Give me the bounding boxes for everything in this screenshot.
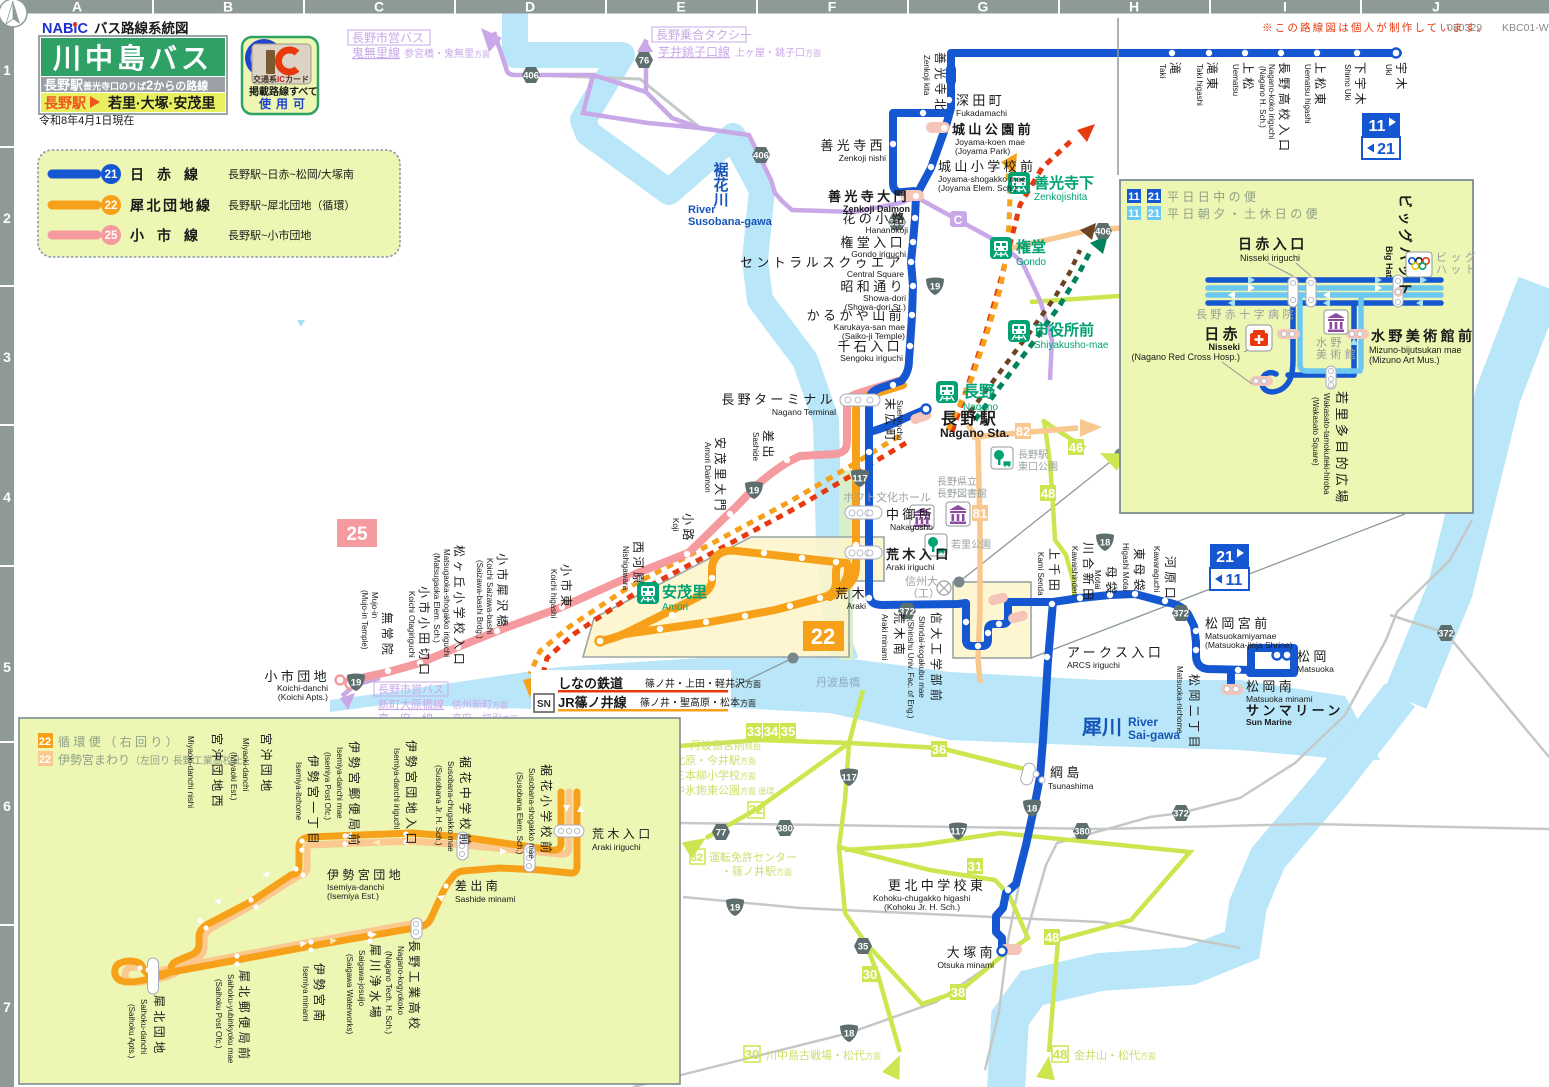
svg-text:美術館: 美術館 xyxy=(1316,347,1359,361)
svg-text:Kawaraguchi: Kawaraguchi xyxy=(1152,546,1161,592)
svg-text:伊勢宮一丁目: 伊勢宮一丁目 xyxy=(306,755,321,847)
svg-text:Gondo: Gondo xyxy=(1016,257,1046,268)
svg-text:32: 32 xyxy=(691,852,703,864)
svg-text:城山公園前: 城山公園前 xyxy=(952,122,1034,137)
svg-text:Isemiya-danchi mae: Isemiya-danchi mae xyxy=(335,747,344,819)
svg-text:(Susobana Elem. Sch.): (Susobana Elem. Sch.) xyxy=(515,772,524,855)
svg-text:Big Hat: Big Hat xyxy=(1384,246,1394,278)
svg-text:母袋: 母袋 xyxy=(1104,566,1118,597)
svg-text:Kami Senda: Kami Senda xyxy=(1036,552,1045,596)
svg-text:77: 77 xyxy=(716,828,727,839)
svg-text:(Mizuno Art Mus.): (Mizuno Art Mus.) xyxy=(1369,355,1440,365)
svg-text:Koichi higashi: Koichi higashi xyxy=(549,569,558,619)
svg-text:ビッグ: ビッグ xyxy=(1436,250,1479,264)
svg-text:水野美術館前: 水野美術館前 xyxy=(1371,328,1475,344)
svg-text:若里公園: 若里公園 xyxy=(951,538,991,551)
svg-text:48: 48 xyxy=(1045,930,1059,945)
svg-text:芋井銚子口線: 芋井銚子口線 xyxy=(658,44,730,59)
svg-text:丹波島橋: 丹波島橋 xyxy=(816,675,860,689)
svg-text:篠ノ井・上田・軽井沢方面: 篠ノ井・上田・軽井沢方面 xyxy=(645,677,761,690)
svg-text:Sai-gawa: Sai-gawa xyxy=(1128,728,1180,742)
svg-text:小市線: 小市線 xyxy=(130,228,211,244)
svg-text:Mujo-in: Mujo-in xyxy=(370,592,379,618)
svg-text:ARCS iriguchi: ARCS iriguchi xyxy=(1067,660,1120,670)
svg-text:Uki: Uki xyxy=(1384,64,1393,76)
svg-text:上千田: 上千田 xyxy=(1047,548,1061,594)
svg-text:Central Square: Central Square xyxy=(847,269,904,279)
svg-text:権堂: 権堂 xyxy=(1016,238,1046,256)
svg-text:380: 380 xyxy=(777,824,793,835)
svg-text:117: 117 xyxy=(852,474,867,485)
svg-text:82: 82 xyxy=(1016,424,1030,439)
svg-text:東口公園: 東口公園 xyxy=(1018,460,1058,473)
svg-text:長野工業高校: 長野工業高校 xyxy=(407,940,422,1032)
svg-text:長野駅~犀北団地（循環）: 長野駅~犀北団地（循環） xyxy=(228,199,355,212)
svg-text:(Kohoku Jr. H. Sch.): (Kohoku Jr. H. Sch.) xyxy=(884,902,960,912)
svg-text:Amori: Amori xyxy=(662,602,688,613)
svg-text:River: River xyxy=(1128,715,1158,729)
svg-text:犀北団地: 犀北団地 xyxy=(152,995,166,1057)
svg-text:Nagano-koko iriguchi: Nagano-koko iriguchi xyxy=(1267,64,1276,139)
svg-text:KBC01-W2: KBC01-W2 xyxy=(1502,22,1549,34)
svg-text:19: 19 xyxy=(351,678,362,689)
svg-text:Uematsu: Uematsu xyxy=(1231,64,1240,96)
svg-text:Kawaishinden: Kawaishinden xyxy=(1070,546,1079,596)
svg-text:J: J xyxy=(1432,0,1440,15)
svg-text:Higashi Motai: Higashi Motai xyxy=(1121,543,1130,592)
svg-text:Otsuka minami: Otsuka minami xyxy=(937,960,994,970)
svg-text:C: C xyxy=(954,213,963,227)
svg-text:406: 406 xyxy=(753,151,769,162)
svg-text:長野乗合タクシー: 長野乗合タクシー xyxy=(656,27,752,42)
svg-text:32: 32 xyxy=(749,802,763,817)
svg-text:38: 38 xyxy=(951,985,965,1000)
svg-text:信大工学部前: 信大工学部前 xyxy=(929,612,944,704)
svg-text:Araki: Araki xyxy=(847,601,866,611)
svg-text:Sashide minami: Sashide minami xyxy=(455,894,516,904)
svg-text:117: 117 xyxy=(950,827,965,838)
svg-text:篠ノ井・聖高原・松本方面: 篠ノ井・聖高原・松本方面 xyxy=(640,696,756,709)
svg-text:ビッグハット: ビッグハット xyxy=(1397,194,1413,298)
svg-text:76: 76 xyxy=(639,56,650,67)
svg-text:伊勢宮団地入口: 伊勢宮団地入口 xyxy=(404,740,419,848)
svg-text:伊勢宮南: 伊勢宮南 xyxy=(312,963,327,1025)
svg-text:22: 22 xyxy=(105,200,118,212)
svg-text:上松東: 上松東 xyxy=(1313,62,1327,108)
svg-text:更北中学校東: 更北中学校東 xyxy=(888,878,986,893)
svg-text:新町大原橋線: 新町大原橋線 xyxy=(378,697,444,711)
svg-text:無常院: 無常院 xyxy=(380,612,395,658)
svg-text:Taki higashi: Taki higashi xyxy=(1195,64,1204,106)
svg-text:(Nagano Tech. H. Sch.): (Nagano Tech. H. Sch.) xyxy=(384,951,393,1034)
svg-text:Nisseki: Nisseki xyxy=(1208,342,1240,352)
svg-text:Isemiya minami: Isemiya minami xyxy=(301,966,310,1022)
svg-text:運転免許センター: 運転免許センター xyxy=(709,850,797,864)
svg-text:Zenkojishita: Zenkojishita xyxy=(1034,192,1088,203)
svg-text:Araki iriguchi: Araki iriguchi xyxy=(592,842,641,852)
svg-text:令和8年4月1日現在: 令和8年4月1日現在 xyxy=(39,113,134,127)
svg-text:平日朝夕・土休日の便: 平日朝夕・土休日の便 xyxy=(1167,207,1321,221)
svg-text:(Matsuoka-jinja Shrine): (Matsuoka-jinja Shrine) xyxy=(1205,640,1293,650)
svg-text:犀北団地線: 犀北団地線 xyxy=(129,198,213,214)
svg-text:善光寺西: 善光寺西 xyxy=(820,138,886,153)
svg-text:Miyaoki-danchi nishi: Miyaoki-danchi nishi xyxy=(186,736,195,808)
svg-text:36: 36 xyxy=(932,742,946,757)
svg-text:宮沖団地西: 宮沖団地西 xyxy=(210,733,225,810)
svg-text:Saigawa-josuijo: Saigawa-josuijo xyxy=(357,950,366,1007)
svg-text:長野図書館: 長野図書館 xyxy=(937,487,987,500)
svg-text:372: 372 xyxy=(1438,629,1454,640)
svg-text:30: 30 xyxy=(863,967,877,982)
svg-text:Miyaoki-danchi: Miyaoki-danchi xyxy=(241,738,250,792)
svg-text:21: 21 xyxy=(1377,141,1395,158)
svg-text:372: 372 xyxy=(1173,609,1189,620)
svg-text:千石入口: 千石入口 xyxy=(837,339,903,354)
svg-text:33: 33 xyxy=(747,724,761,739)
svg-text:Shindai-kogakubu mae: Shindai-kogakubu mae xyxy=(917,616,926,698)
svg-text:Nagano-kogyokoko: Nagano-kogyokoko xyxy=(396,946,405,1015)
svg-text:380: 380 xyxy=(1074,827,1090,838)
svg-text:18: 18 xyxy=(844,1029,855,1040)
svg-text:11: 11 xyxy=(1128,208,1140,220)
svg-text:25: 25 xyxy=(346,524,368,545)
svg-text:花の小路: 花の小路 xyxy=(842,211,908,226)
svg-text:河原口: 河原口 xyxy=(1163,556,1177,602)
svg-text:伊勢宮郵便局前: 伊勢宮郵便局前 xyxy=(347,741,362,849)
svg-text:(Nagano H. Sch.): (Nagano H. Sch.) xyxy=(1258,66,1267,128)
svg-text:46: 46 xyxy=(1069,440,1083,455)
svg-text:Araki iriguchi: Araki iriguchi xyxy=(886,562,935,572)
svg-text:21: 21 xyxy=(1216,549,1234,566)
svg-text:Nishigawara: Nishigawara xyxy=(621,546,630,591)
svg-text:使用可: 使用可 xyxy=(258,96,310,111)
svg-text:Shimo Uki: Shimo Uki xyxy=(1343,64,1352,101)
svg-text:19: 19 xyxy=(930,282,941,293)
svg-text:48: 48 xyxy=(1053,1047,1067,1062)
svg-text:日赤線: 日赤線 xyxy=(130,167,211,183)
svg-text:荒木: 荒木 xyxy=(835,586,868,601)
svg-text:ハット: ハット xyxy=(1436,264,1479,276)
svg-text:E: E xyxy=(676,0,685,15)
svg-text:昭和通り: 昭和通り xyxy=(840,279,906,294)
svg-text:バス路線系統図: バス路線系統図 xyxy=(94,20,189,36)
svg-text:(Joyama Park): (Joyama Park) xyxy=(955,146,1010,156)
svg-text:裾花川: 裾花川 xyxy=(712,161,730,207)
svg-text:Tsunashima: Tsunashima xyxy=(1048,781,1094,791)
svg-text:Mizuno-bijutsukan mae: Mizuno-bijutsukan mae xyxy=(1369,345,1462,355)
svg-text:Susobana-chugakko mae: Susobana-chugakko mae xyxy=(446,761,455,852)
svg-text:18: 18 xyxy=(1027,804,1038,815)
svg-text:1: 1 xyxy=(3,62,11,78)
svg-text:松ヶ丘小学校入口: 松ヶ丘小学校入口 xyxy=(452,545,467,668)
svg-text:21: 21 xyxy=(105,169,118,181)
svg-text:(Saigawa Waterworks): (Saigawa Waterworks) xyxy=(345,954,354,1035)
svg-text:長野県立: 長野県立 xyxy=(937,475,977,488)
svg-text:小市東: 小市東 xyxy=(559,564,574,610)
svg-text:日赤: 日赤 xyxy=(1204,325,1241,343)
svg-text:松岡二丁目: 松岡二丁目 xyxy=(1187,674,1201,751)
svg-text:Nagano Sta.: Nagano Sta. xyxy=(940,426,1009,440)
svg-text:Sashide: Sashide xyxy=(751,432,760,461)
svg-text:406: 406 xyxy=(523,71,539,82)
svg-text:宇木: 宇木 xyxy=(1394,62,1408,93)
svg-text:(Matsugaoka Elem. Sch.): (Matsugaoka Elem. Sch.) xyxy=(432,553,441,643)
svg-text:若里多目的広場: 若里多目的広場 xyxy=(1334,391,1349,506)
svg-text:406: 406 xyxy=(1095,227,1111,238)
svg-text:松岡南: 松岡南 xyxy=(1246,679,1295,694)
svg-text:荒木入口: 荒木入口 xyxy=(885,547,952,562)
svg-text:30: 30 xyxy=(745,1047,759,1062)
svg-text:市役所前: 市役所前 xyxy=(1034,321,1094,339)
svg-text:循環便（右回り）: 循環便（右回り） xyxy=(58,734,181,749)
svg-text:若里·大塚·安茂里: 若里·大塚·安茂里 xyxy=(107,95,215,111)
svg-text:21: 21 xyxy=(1148,208,1160,220)
svg-text:Susobana-shogakko mae: Susobana-shogakko mae xyxy=(527,768,536,859)
svg-text:Nagano Terminal: Nagano Terminal xyxy=(772,407,836,417)
svg-text:81: 81 xyxy=(973,506,987,521)
svg-text:アークス入口: アークス入口 xyxy=(1067,645,1164,660)
svg-text:(Joyama Elem. Sch.): (Joyama Elem. Sch.) xyxy=(938,183,1017,193)
svg-text:（工）: （工） xyxy=(907,587,940,600)
svg-text:Taki: Taki xyxy=(1158,64,1167,78)
svg-text:長野高校入口: 長野高校入口 xyxy=(1277,62,1292,154)
svg-text:35: 35 xyxy=(781,724,795,739)
svg-text:長野駅~日赤~松岡/大塚南: 長野駅~日赤~松岡/大塚南 xyxy=(228,167,354,181)
svg-text:かるかや山前: かるかや山前 xyxy=(807,308,905,323)
svg-text:3: 3 xyxy=(3,349,11,365)
svg-text:080329: 080329 xyxy=(1447,22,1482,34)
svg-text:18: 18 xyxy=(1100,538,1111,549)
svg-text:Zenkoji kita: Zenkoji kita xyxy=(922,55,931,96)
svg-text:Wakasato-tamokuteki-hiroba: Wakasato-tamokuteki-hiroba xyxy=(1322,393,1331,495)
svg-text:48: 48 xyxy=(1041,486,1055,501)
svg-text:Amori Daimon: Amori Daimon xyxy=(703,442,712,493)
svg-text:11: 11 xyxy=(1128,191,1140,203)
svg-text:長野赤十字病院: 長野赤十字病院 xyxy=(1196,307,1297,321)
svg-text:小市犀沢橋: 小市犀沢橋 xyxy=(495,553,510,630)
svg-text:犀川浄水場: 犀川浄水場 xyxy=(368,944,382,1021)
svg-text:Fukadamachi: Fukadamachi xyxy=(956,108,1007,118)
svg-text:(Saizawa-bashi Brdg.): (Saizawa-bashi Brdg.) xyxy=(475,560,484,639)
svg-text:善光寺大門: 善光寺大門 xyxy=(828,189,910,204)
svg-text:善光寺北: 善光寺北 xyxy=(933,52,948,114)
svg-text:犀北郵便局前: 犀北郵便局前 xyxy=(237,970,252,1062)
svg-text:(Wakasato Square): (Wakasato Square) xyxy=(1311,397,1320,466)
svg-text:裾花小学校前: 裾花小学校前 xyxy=(539,764,554,856)
svg-text:(Koichi Apts.): (Koichi Apts.) xyxy=(278,692,328,702)
svg-text:伊勢宮団地: 伊勢宮団地 xyxy=(327,867,404,882)
svg-text:交通系ICカード: 交通系ICカード xyxy=(253,74,309,84)
svg-text:小市小田切口: 小市小田切口 xyxy=(417,586,432,678)
svg-text:I: I xyxy=(1283,0,1287,15)
svg-text:荒木入口: 荒木入口 xyxy=(592,827,654,841)
svg-text:(Nagano Red Cross Hosp.): (Nagano Red Cross Hosp.) xyxy=(1131,352,1240,362)
svg-text:セントラルスクゥエア: セントラルスクゥエア xyxy=(740,255,904,270)
svg-text:川中島バス: 川中島バス xyxy=(53,43,213,74)
svg-text:滝: 滝 xyxy=(1168,62,1182,77)
svg-text:平日日中の便: 平日日中の便 xyxy=(1167,189,1259,204)
svg-text:7: 7 xyxy=(3,999,11,1015)
svg-text:上松: 上松 xyxy=(1241,62,1255,93)
svg-text:Hananokoji: Hananokoji xyxy=(865,225,908,235)
svg-text:Shiyakusho-mae: Shiyakusho-mae xyxy=(1034,340,1109,351)
svg-text:長野駅~小市団地: 長野駅~小市団地 xyxy=(228,228,311,242)
svg-text:G: G xyxy=(978,0,989,15)
svg-text:中御所: 中御所 xyxy=(886,507,935,522)
svg-text:21: 21 xyxy=(1148,191,1160,203)
svg-text:11: 11 xyxy=(1226,572,1243,589)
svg-text:長野ターミナル: 長野ターミナル xyxy=(721,392,836,407)
svg-text:信州大: 信州大 xyxy=(905,574,938,588)
svg-text:Isemiya-danchi iriguchi: Isemiya-danchi iriguchi xyxy=(392,748,401,830)
svg-text:Matsuoka-nichome: Matsuoka-nichome xyxy=(1175,666,1184,734)
svg-text:川中島古戦場・松代方面: 川中島古戦場・松代方面 xyxy=(766,1048,881,1062)
svg-text:善光寺下: 善光寺下 xyxy=(1034,174,1094,192)
svg-text:372: 372 xyxy=(1173,809,1189,820)
svg-text:滝東: 滝東 xyxy=(1205,62,1219,93)
svg-text:A: A xyxy=(72,0,82,15)
svg-text:Matsuoka: Matsuoka xyxy=(1297,664,1334,674)
svg-text:Zenkoji nishi: Zenkoji nishi xyxy=(839,153,886,163)
svg-text:6: 6 xyxy=(3,798,11,814)
svg-text:しなの鉄道: しなの鉄道 xyxy=(558,676,623,691)
svg-text:権堂入口: 権堂入口 xyxy=(840,235,906,250)
svg-text:NABiC: NABiC xyxy=(42,21,88,37)
svg-text:Isemiya-itchome: Isemiya-itchome xyxy=(294,762,303,821)
svg-text:大塚南: 大塚南 xyxy=(947,945,996,960)
svg-text:荒木南: 荒木南 xyxy=(892,612,907,658)
svg-text:西河原: 西河原 xyxy=(631,541,645,587)
svg-text:River: River xyxy=(688,204,716,216)
svg-text:SN: SN xyxy=(537,699,551,710)
svg-text:Suehirocho: Suehirocho xyxy=(895,400,904,441)
svg-text:Koichi Otagiriguchi: Koichi Otagiriguchi xyxy=(407,591,416,658)
svg-text:長野駅: 長野駅 xyxy=(1018,449,1048,461)
svg-text:小路: 小路 xyxy=(681,513,696,544)
svg-text:F: F xyxy=(828,0,837,15)
svg-text:Nisseki iriguchi: Nisseki iriguchi xyxy=(1240,253,1300,263)
svg-text:ホクト文化ホール: ホクト文化ホール xyxy=(843,490,931,504)
svg-text:19: 19 xyxy=(749,486,760,497)
svg-text:(Susobana Jr. H. Sch.): (Susobana Jr. H. Sch.) xyxy=(434,765,443,846)
svg-text:長野駅: 長野駅 xyxy=(44,95,87,111)
svg-text:34: 34 xyxy=(764,724,779,739)
svg-text:Koji: Koji xyxy=(671,518,680,532)
svg-text:5: 5 xyxy=(3,659,11,675)
svg-text:H: H xyxy=(1129,0,1139,15)
svg-text:Araki minami: Araki minami xyxy=(880,614,889,660)
svg-text:(Miyaoki Est.): (Miyaoki Est.) xyxy=(229,752,238,801)
svg-text:B: B xyxy=(223,0,233,15)
svg-text:Matsugaoka-shogakko iriguchi: Matsugaoka-shogakko iriguchi xyxy=(442,549,451,657)
svg-text:JR篠ノ井線: JR篠ノ井線 xyxy=(558,695,628,710)
svg-text:35: 35 xyxy=(858,942,869,953)
svg-text:安茂里: 安茂里 xyxy=(662,583,707,601)
svg-text:松岡: 松岡 xyxy=(1297,649,1330,664)
svg-text:Susobana-gawa: Susobana-gawa xyxy=(688,216,773,228)
svg-text:深田町: 深田町 xyxy=(956,93,1005,108)
svg-text:Uematsu higashi: Uematsu higashi xyxy=(1303,64,1312,124)
svg-text:裾花中学校前: 裾花中学校前 xyxy=(458,756,473,848)
svg-text:22: 22 xyxy=(811,624,835,649)
svg-text:2: 2 xyxy=(3,210,11,226)
svg-text:(Isemiya Post Ofc.): (Isemiya Post Ofc.) xyxy=(323,752,332,820)
svg-text:Saihoku-yubinkyoku mae: Saihoku-yubinkyoku mae xyxy=(226,974,235,1064)
svg-text:(Saihoku Post Ofc.): (Saihoku Post Ofc.) xyxy=(214,979,223,1049)
svg-text:長野市営バス: 長野市営バス xyxy=(378,682,444,696)
svg-text:差出: 差出 xyxy=(761,430,775,461)
svg-text:Sun Marine: Sun Marine xyxy=(1246,717,1292,727)
svg-text:サンマリーン: サンマリーン xyxy=(1246,703,1344,718)
svg-text:犀川: 犀川 xyxy=(1082,717,1122,739)
svg-text:水野: 水野 xyxy=(1316,336,1345,349)
svg-text:Saihoku-danchi: Saihoku-danchi xyxy=(139,999,148,1054)
svg-text:(Shinshu Univ. Fac. of Eng.): (Shinshu Univ. Fac. of Eng.) xyxy=(906,619,915,719)
svg-text:綱島: 綱島 xyxy=(1050,765,1083,780)
svg-text:下宇木: 下宇木 xyxy=(1353,62,1367,108)
svg-text:松岡宮前: 松岡宮前 xyxy=(1205,616,1271,631)
svg-text:長野: 長野 xyxy=(963,383,995,401)
svg-text:11: 11 xyxy=(1369,118,1386,135)
svg-text:D: D xyxy=(525,0,535,15)
svg-text:末広町: 末広町 xyxy=(883,398,897,444)
svg-text:19: 19 xyxy=(730,903,741,914)
svg-text:4: 4 xyxy=(3,489,11,505)
svg-text:差出南: 差出南 xyxy=(455,878,501,893)
svg-text:25: 25 xyxy=(105,230,118,242)
svg-text:Motai: Motai xyxy=(1093,570,1102,590)
svg-text:安茂里大門: 安茂里大門 xyxy=(713,437,728,514)
svg-text:(Mujo-in Temple): (Mujo-in Temple) xyxy=(360,590,369,650)
svg-text:日赤入口: 日赤入口 xyxy=(1238,236,1308,252)
svg-text:117: 117 xyxy=(841,773,856,784)
svg-text:東母袋: 東母袋 xyxy=(1132,548,1146,594)
svg-text:C: C xyxy=(374,0,384,15)
svg-text:長野市営バス: 長野市営バス xyxy=(352,30,424,45)
svg-text:22: 22 xyxy=(39,754,51,766)
svg-text:(Saihoku Apts.): (Saihoku Apts.) xyxy=(127,1004,136,1059)
svg-text:小市団地: 小市団地 xyxy=(264,669,330,684)
svg-text:22: 22 xyxy=(39,736,51,748)
svg-text:Sengoku iriguchi: Sengoku iriguchi xyxy=(840,353,903,363)
svg-text:(Isemiya Est.): (Isemiya Est.) xyxy=(327,891,379,901)
svg-text:城山小学校前: 城山小学校前 xyxy=(938,159,1036,174)
svg-text:31: 31 xyxy=(968,859,982,874)
svg-text:Nakagosho: Nakagosho xyxy=(890,522,933,532)
svg-text:Koichi Saizawa-bashi: Koichi Saizawa-bashi xyxy=(485,558,494,634)
svg-text:宮沖団地: 宮沖団地 xyxy=(259,733,274,795)
svg-text:鬼無里線: 鬼無里線 xyxy=(352,45,400,60)
